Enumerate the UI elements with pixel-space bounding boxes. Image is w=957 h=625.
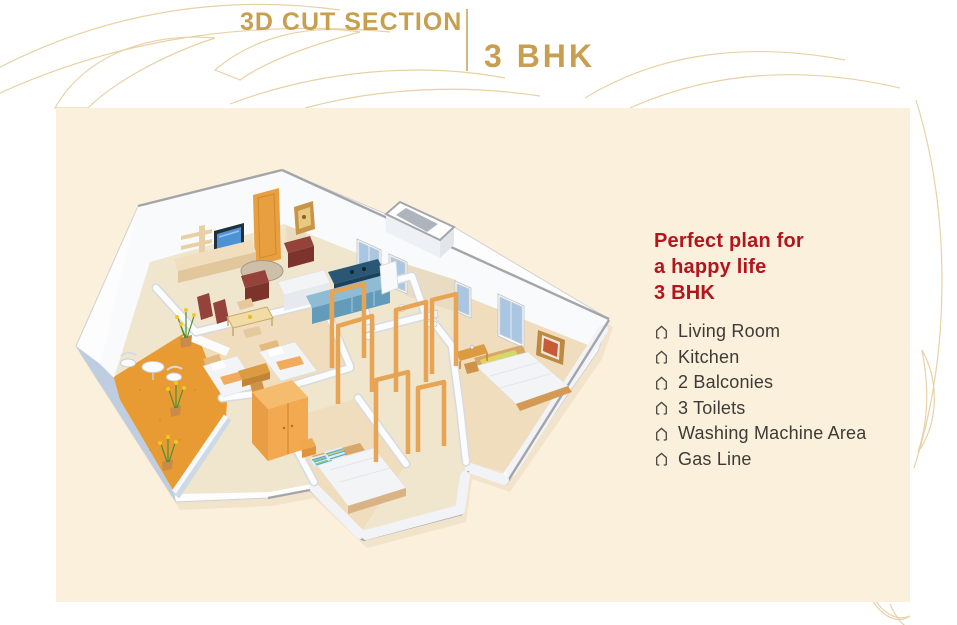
feature-item-gas-line: Gas Line (654, 447, 866, 473)
heading-line: a happy life (654, 254, 866, 280)
feature-label: 3 Toilets (678, 398, 746, 419)
page: 3D CUT SECTION 3 BHK (0, 0, 957, 625)
wardrobe (252, 380, 308, 461)
feature-label: Kitchen (678, 347, 739, 368)
floor-plan-3d (60, 140, 620, 580)
feature-item-washing-machine-area: Washing Machine Area (654, 421, 866, 447)
feature-label: Living Room (678, 321, 780, 342)
plan-heading: Perfect plan for a happy life 3 BHK (654, 228, 866, 306)
plan-info: Perfect plan for a happy life 3 BHK Livi… (654, 228, 866, 472)
feature-item-kitchen: Kitchen (654, 345, 866, 371)
feature-label: Gas Line (678, 449, 752, 470)
house-icon (654, 350, 669, 364)
house-icon (654, 452, 669, 466)
heading-line: 3 BHK (654, 280, 866, 306)
feature-item-balconies: 2 Balconies (654, 370, 866, 396)
title-separator (466, 9, 468, 71)
house-icon (654, 427, 669, 441)
house-icon (654, 401, 669, 415)
heading-line: Perfect plan for (654, 228, 866, 254)
house-icon (654, 376, 669, 390)
house-icon (654, 325, 669, 339)
feature-item-living-room: Living Room (654, 319, 866, 345)
feature-label: 2 Balconies (678, 372, 773, 393)
feature-label: Washing Machine Area (678, 423, 866, 444)
feature-item-toilets: 3 Toilets (654, 396, 866, 422)
page-subtitle: 3 BHK (484, 38, 595, 75)
page-title: 3D CUT SECTION (240, 8, 462, 37)
feature-list: Living Room Kitchen 2 Balconies 3 Toilet… (654, 319, 866, 472)
